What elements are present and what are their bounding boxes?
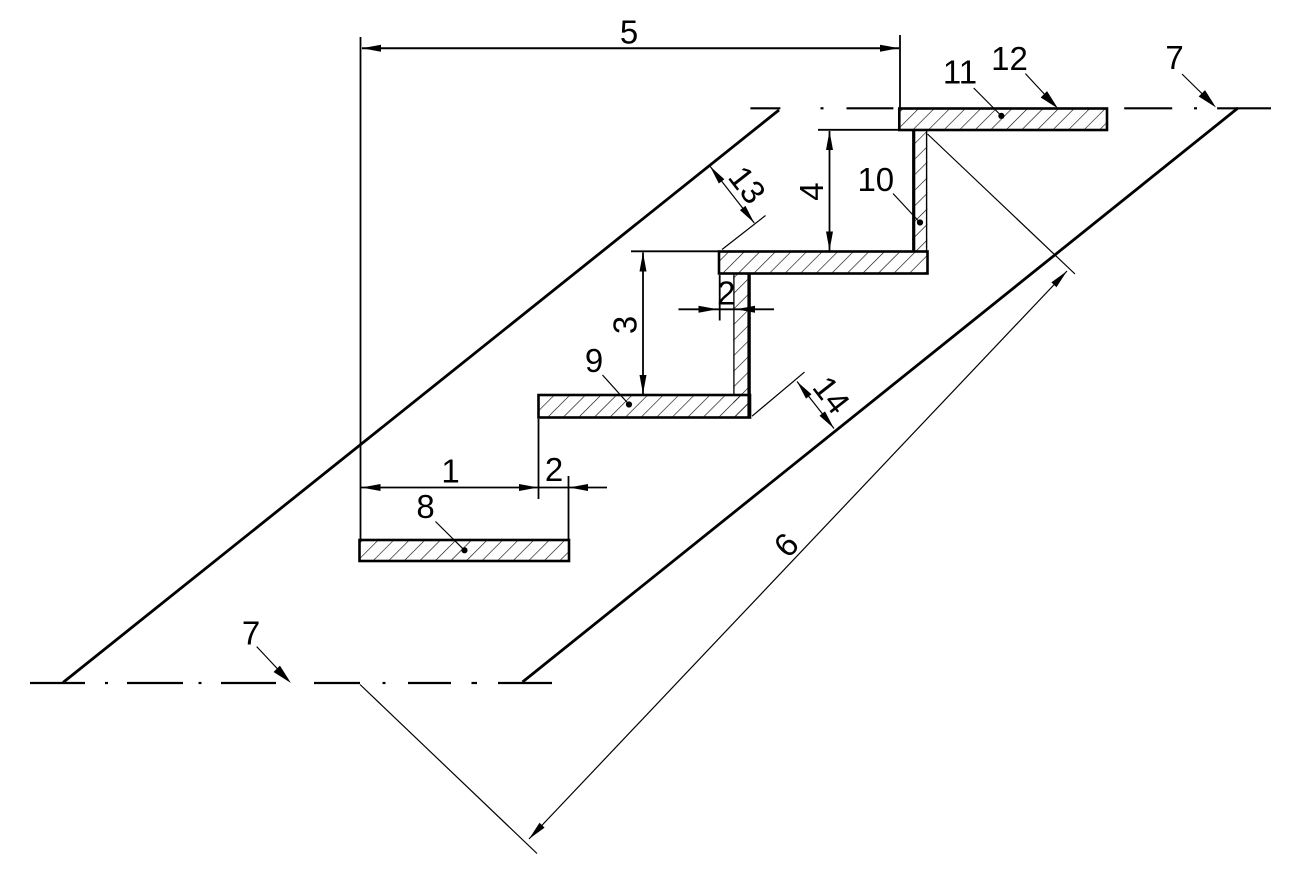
svg-text:3: 3 bbox=[606, 316, 643, 334]
svg-text:4: 4 bbox=[793, 182, 830, 200]
svg-text:1: 1 bbox=[441, 452, 459, 489]
svg-text:2: 2 bbox=[717, 274, 735, 311]
svg-text:10: 10 bbox=[857, 161, 894, 198]
svg-text:7: 7 bbox=[242, 615, 260, 652]
svg-text:7: 7 bbox=[1165, 39, 1183, 76]
svg-text:2: 2 bbox=[545, 451, 563, 488]
svg-text:9: 9 bbox=[585, 342, 603, 379]
svg-text:11: 11 bbox=[943, 54, 977, 91]
svg-text:12: 12 bbox=[991, 40, 1028, 77]
svg-text:8: 8 bbox=[416, 488, 434, 525]
svg-text:5: 5 bbox=[620, 13, 638, 50]
